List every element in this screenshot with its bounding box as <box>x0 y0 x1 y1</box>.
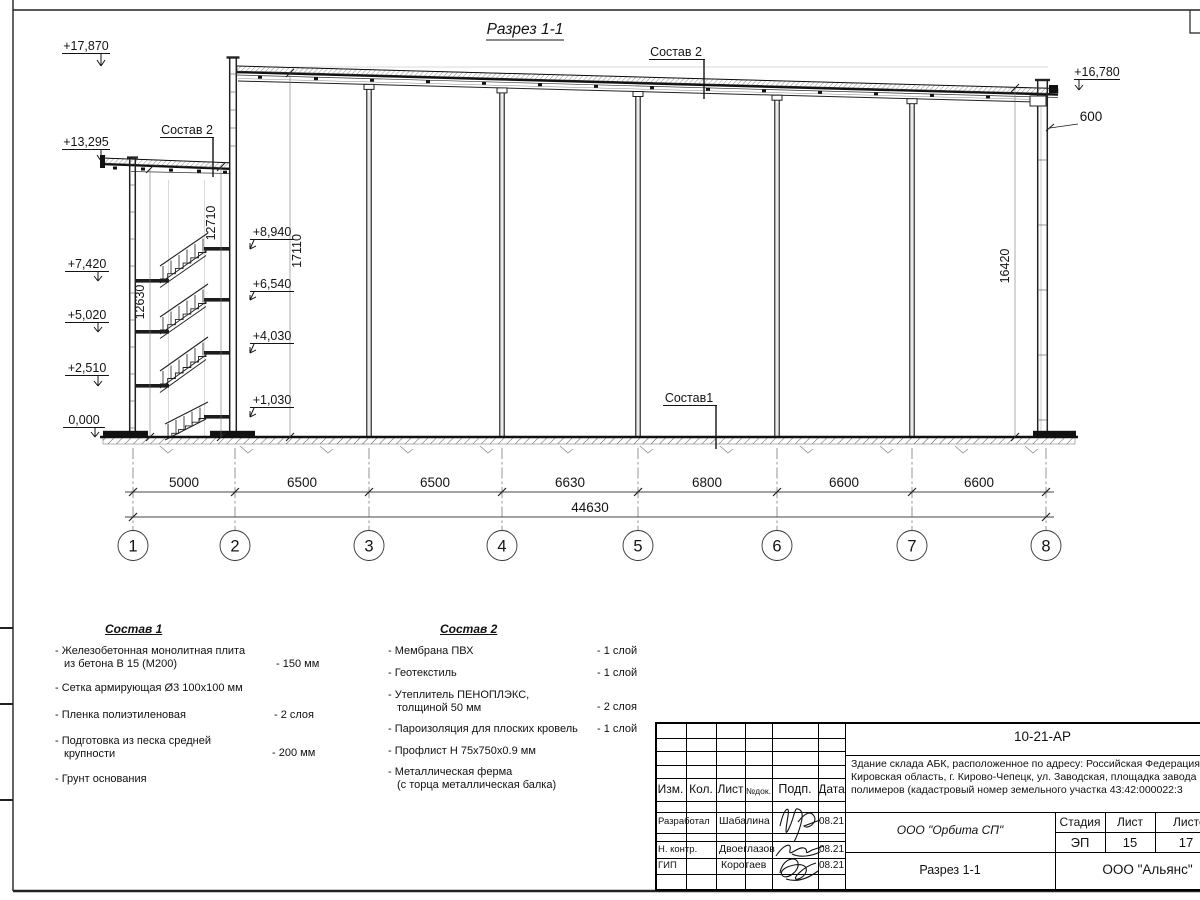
ground-breaks <box>160 446 1038 453</box>
dim-seg-5: 6800 <box>692 475 722 490</box>
dimension-lines: 5000 6500 6500 6630 6800 6600 6600 44630 <box>125 475 1054 521</box>
grid-axis-lines <box>133 448 1046 530</box>
tb-stage-value: ЭП <box>1055 835 1105 850</box>
dim-16420: 16420 <box>998 249 1012 284</box>
tb-sheet-value: 15 <box>1105 835 1155 850</box>
tb-stage-label: Стадия <box>1055 815 1105 829</box>
axis-bubble-6: 6 <box>772 538 781 556</box>
edge-beam <box>1030 96 1046 106</box>
vertical-dimensions: 12630 12710 17110 16420 <box>133 69 1019 441</box>
tb-sheets-value: 17 <box>1155 835 1200 850</box>
svg-text:+1,030: +1,030 <box>253 393 292 407</box>
grid-bubbles: 1 2 3 4 5 6 7 8 <box>118 531 1061 561</box>
callout-sostav2-top: Состав 2 <box>650 45 702 59</box>
tb-name-1: Двоеглазов <box>719 843 775 855</box>
callout-sostav1: Состав1 <box>665 391 713 405</box>
stair-flights <box>160 233 208 440</box>
dim-seg-4: 6630 <box>555 475 585 490</box>
list-item: - Утеплитель ПЕНОПЛЭКС,толщиной 50 мм <box>388 689 529 714</box>
elev-4030: +4,030 <box>250 329 294 353</box>
foundation-axis2 <box>210 431 255 438</box>
elev-6540: +6,540 <box>250 277 294 300</box>
list-item: - Металлическая ферма(с торца металличес… <box>388 766 556 791</box>
axis-bubble-1: 1 <box>128 538 137 556</box>
tb-doc-number: 10-21-АР <box>845 729 1200 744</box>
svg-text:+16,780: +16,780 <box>1074 65 1120 79</box>
list-item: - Пароизоляция для плоских кровель <box>388 723 578 736</box>
tb-name-0: Шабалина <box>719 815 770 827</box>
tb-col-izm: Изм. <box>655 782 686 796</box>
elev-0000: 0,000 <box>63 413 105 437</box>
signature-2 <box>772 853 830 883</box>
list-item: - Мембрана ПВХ <box>388 645 473 658</box>
elev-17870: +17,870 <box>62 39 110 66</box>
dim-12710: 12710 <box>204 206 218 241</box>
svg-text:+2,510: +2,510 <box>68 361 107 375</box>
svg-text:+5,020: +5,020 <box>68 308 107 322</box>
list-item-value: - 1 слой <box>597 667 637 679</box>
tb-description-line3: полимеров (кадастровый номер земельного … <box>851 784 1183 796</box>
svg-text:+17,870: +17,870 <box>63 39 109 53</box>
elev-7420: +7,420 <box>65 257 109 281</box>
dim-seg-6: 6600 <box>829 475 859 490</box>
tb-org: ООО "Орбита СП" <box>845 823 1055 837</box>
tb-col-data: Дата <box>818 782 845 796</box>
axis-bubble-4: 4 <box>497 538 506 556</box>
svg-text:+13,295: +13,295 <box>63 135 109 149</box>
callouts: Состав 2 Состав 2 Состав1 <box>160 45 717 449</box>
tb-contractor: ООО "Альянс" <box>1055 862 1200 877</box>
list-item: - Сетка армирующая Ø3 100х100 мм <box>55 682 243 695</box>
dim-600: 600 <box>1046 109 1102 131</box>
dim-total: 44630 <box>571 500 609 515</box>
foundation-axis8 <box>1033 431 1076 438</box>
tb-col-list: Лист <box>716 782 745 796</box>
list-item: - Геотекстиль <box>388 667 457 680</box>
view-title: Разрез 1-1 <box>487 21 564 38</box>
list-item-value: - 2 слоя <box>274 709 314 721</box>
list-item: - Подготовка из песка среднейкрупности <box>55 735 211 760</box>
svg-text:0,000: 0,000 <box>68 413 99 427</box>
axis-bubble-8: 8 <box>1041 538 1050 556</box>
dim-seg-1: 5000 <box>169 475 199 490</box>
dim-seg-7: 6600 <box>964 475 994 490</box>
list-item-value: - 1 слой <box>597 645 637 657</box>
abk-roof <box>100 155 236 174</box>
dim-seg-3: 6500 <box>420 475 450 490</box>
tb-role-1: Н. контр. <box>658 844 697 855</box>
list-item-value: - 2 слоя <box>597 701 637 713</box>
tb-col-ndoc: №док. <box>745 786 772 796</box>
dim-12630: 12630 <box>133 285 147 320</box>
svg-text:+6,540: +6,540 <box>253 277 292 291</box>
axis-bubble-7: 7 <box>907 538 916 556</box>
svg-text:+7,420: +7,420 <box>68 257 107 271</box>
axis-bubble-5: 5 <box>633 538 642 556</box>
elev-1030: +1,030 <box>250 393 294 417</box>
svg-text:+8,940: +8,940 <box>253 225 292 239</box>
tb-description-line2: Кировская область, г. Кирово-Чепецк, ул.… <box>851 771 1196 783</box>
svg-text:+4,030: +4,030 <box>253 329 292 343</box>
main-roof <box>237 66 1058 102</box>
tb-description-line1: Здание склада АБК, расположенное по адре… <box>851 758 1200 770</box>
svg-text:600: 600 <box>1080 109 1103 124</box>
tb-sheet-label: Лист <box>1105 815 1155 829</box>
list-item: - Железобетонная монолитная плитаиз бето… <box>55 645 245 670</box>
elev-8940: +8,940 <box>250 225 294 249</box>
elev-5020: +5,020 <box>65 308 109 332</box>
tb-col-kol: Кол. <box>686 782 716 796</box>
elev-16780: +16,780 <box>1074 65 1120 90</box>
axis-bubble-3: 3 <box>364 538 373 556</box>
tb-sheets-label: Листов <box>1155 815 1200 829</box>
drawing-sheet: Разрез 1-1 <box>0 0 1200 900</box>
list-item-value: - 150 мм <box>276 658 319 670</box>
callout-sostav2-left: Состав 2 <box>161 123 213 137</box>
floor-slab <box>100 431 1078 453</box>
list-item: - Пленка полиэтиленовая <box>55 709 186 722</box>
list-item: - Грунт основания <box>55 773 147 786</box>
axis-bubble-2: 2 <box>230 538 239 556</box>
tb-role-2: ГИП <box>658 860 677 871</box>
tb-role-0: Разработал <box>658 816 710 827</box>
dim-seg-2: 6500 <box>287 475 317 490</box>
roof-edge-cap <box>1049 85 1058 93</box>
list-item-value: - 200 мм <box>272 747 315 759</box>
wall-axis-8 <box>1030 80 1050 437</box>
elev-2510: +2,510 <box>65 361 109 386</box>
list-item: - Профлист Н 75х750х0.9 мм <box>388 745 536 758</box>
composition2-title: Состав 2 <box>440 622 497 636</box>
hall-columns <box>364 84 917 437</box>
tb-col-podp: Подп. <box>772 782 818 796</box>
list-item-value: - 1 слой <box>597 723 637 735</box>
tb-name-2: Коротаев <box>721 859 766 871</box>
tb-drawing-name: Разрез 1-1 <box>845 863 1055 877</box>
composition1-title: Состав 1 <box>105 622 162 636</box>
foundation-axis1 <box>103 431 148 438</box>
